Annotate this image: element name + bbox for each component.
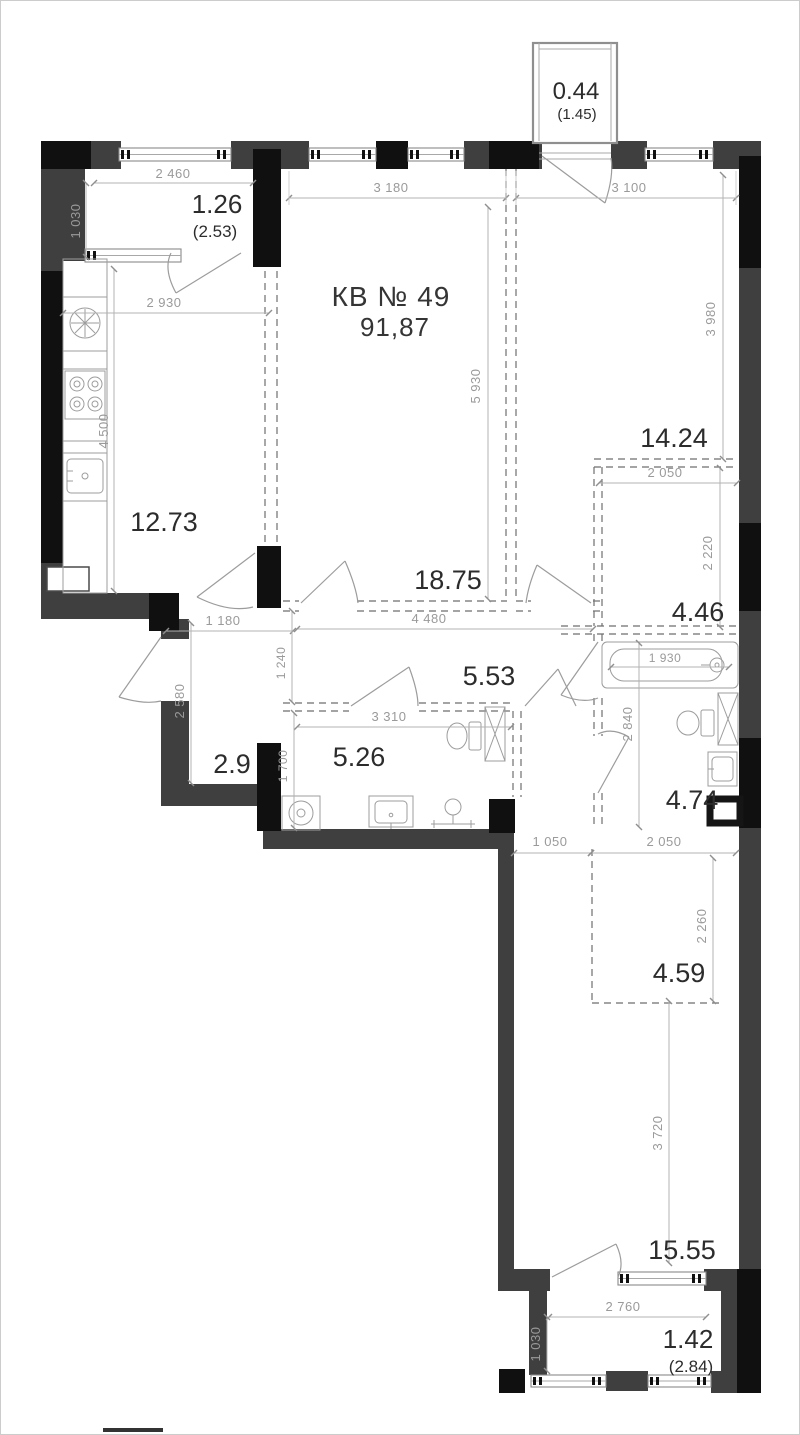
room-living-area: 18.75 [414, 565, 482, 595]
room-entry-area: 2.9 [213, 749, 251, 779]
dim-balcony-left-h: 1 030 [68, 203, 83, 238]
room-kitchen-area: 12.73 [130, 507, 198, 537]
dim-bedroom-right-h: 3 980 [703, 301, 718, 336]
window-balcony-bottom-2 [648, 1375, 711, 1387]
artifact-mark [103, 1428, 163, 1432]
balcony-left-area-full: (2.53) [193, 222, 237, 241]
stove-icon [65, 371, 105, 419]
window-balcony-left-bottom [85, 249, 181, 262]
room-hall-area: 5.53 [463, 661, 516, 691]
window-bedroom-bottom [618, 1272, 706, 1285]
dim-below-bath-w1: 1 050 [532, 834, 567, 849]
dim-zone-right-w: 2 050 [647, 465, 682, 480]
dim-below-bath-w2: 2 050 [646, 834, 681, 849]
room-bath-bottom-area: 4.74 [666, 785, 719, 815]
balcony-bottom-area: 1.42 [663, 1324, 714, 1354]
balcony-left-area: 1.26 [192, 189, 243, 219]
dim-hall-w: 4 480 [411, 611, 446, 626]
dim-bedroom-bottom-h: 3 720 [650, 1115, 665, 1150]
window-balcony-bottom-1 [531, 1375, 606, 1387]
dim-living-h: 5 930 [468, 368, 483, 403]
shower-icon [431, 799, 475, 828]
washing-machine-icon [282, 796, 320, 830]
room-bedroom-right-area: 14.24 [640, 423, 708, 453]
bathtub-icon [602, 642, 738, 688]
sink-474-icon [708, 752, 737, 786]
window-living-1 [309, 148, 376, 161]
wall-niche [47, 567, 89, 591]
dim-bath-h: 2 840 [620, 706, 635, 741]
window-bedroom-right [645, 148, 713, 161]
dim-entry-w: 1 180 [205, 613, 240, 628]
balcony-top-area: 0.44 [553, 78, 600, 105]
apartment-total-area: 91,87 [360, 312, 430, 342]
dim-bedroom-right-w: 3 100 [611, 180, 646, 195]
room-wardrobe-area: 4.59 [653, 958, 706, 988]
dim-wardrobe-h: 2 260 [694, 908, 709, 943]
dim-bath-left-w: 3 310 [371, 709, 406, 724]
dim-hall-left-h: 1 240 [274, 647, 288, 680]
dim-bath-left-h: 1 700 [276, 750, 290, 783]
dim-balcony-bottom-h: 1 030 [528, 1326, 543, 1361]
vent-shaft-526-icon [485, 707, 505, 761]
room-bedroom-bottom-area: 15.55 [648, 1235, 716, 1265]
dim-balcony-left-w: 2 460 [155, 166, 190, 181]
floor-plan-svg: 2 460 1 030 3 180 3 100 3 980 2 930 4 50… [1, 1, 800, 1435]
balcony-bottom-area-full: (2.84) [669, 1357, 713, 1376]
dim-balcony-bottom-w: 2 760 [605, 1299, 640, 1314]
kitchen-sink-icon [67, 459, 103, 493]
window-living-2 [408, 148, 464, 161]
dim-tub-w: 1 930 [649, 651, 682, 665]
dim-living-w: 3 180 [373, 180, 408, 195]
dim-kitchen-h: 4 500 [96, 413, 111, 448]
vent-shaft-474-icon [718, 693, 738, 745]
balcony-top-area-full: (1.45) [557, 106, 596, 123]
toilet-526-icon [447, 722, 481, 750]
room-bath-top-area: 4.46 [672, 597, 725, 627]
dim-kitchen-w: 2 930 [146, 295, 181, 310]
toilet-474-icon [677, 710, 714, 736]
dim-zone-right-h: 2 220 [700, 535, 715, 570]
apartment-title: КВ № 49 [332, 281, 451, 312]
window-top-left [119, 148, 231, 161]
floor-plan-page: 2 460 1 030 3 180 3 100 3 980 2 930 4 50… [0, 0, 800, 1435]
sink-526-icon [369, 796, 413, 829]
dim-entry-h: 2 580 [172, 683, 187, 718]
room-bath-left-area: 5.26 [333, 742, 386, 772]
